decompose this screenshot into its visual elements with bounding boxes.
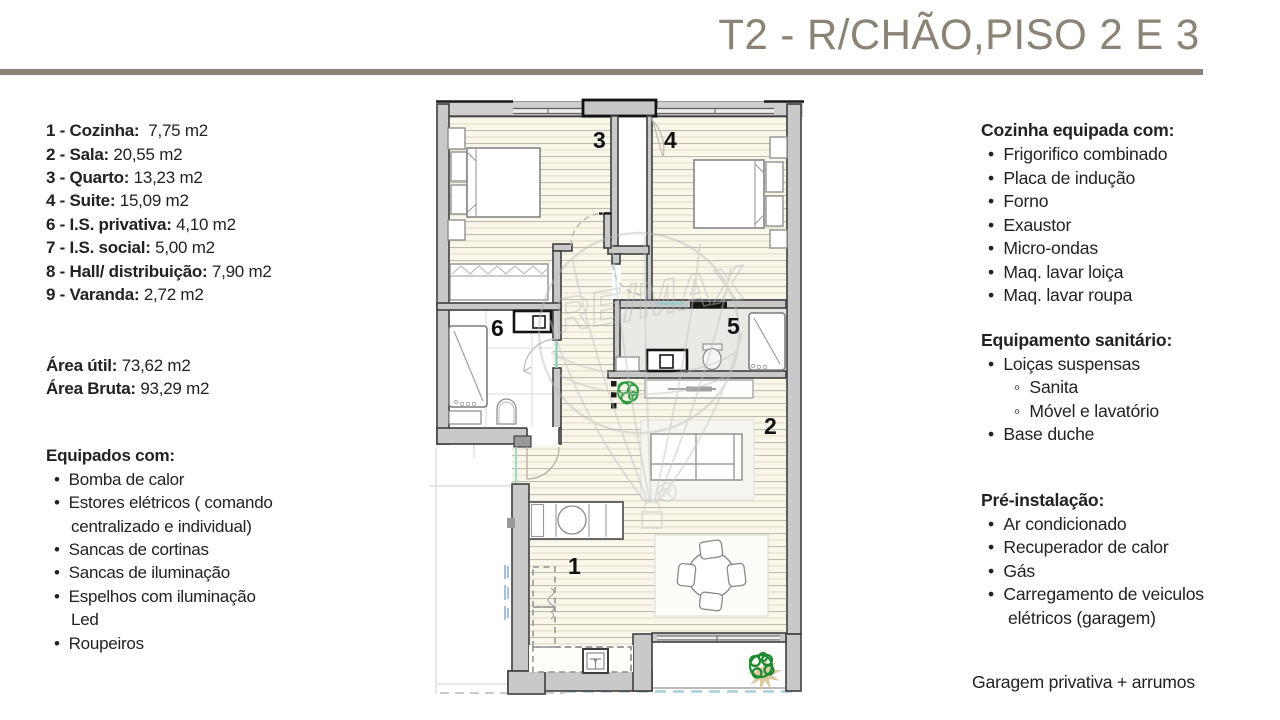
svg-text:3: 3 — [593, 127, 606, 153]
svg-text:2: 2 — [764, 413, 777, 439]
svg-text:4: 4 — [664, 127, 677, 153]
svg-text:R: R — [662, 485, 672, 500]
svg-text:6: 6 — [491, 315, 504, 341]
svg-text:1: 1 — [568, 553, 581, 579]
svg-text:5: 5 — [727, 313, 740, 339]
